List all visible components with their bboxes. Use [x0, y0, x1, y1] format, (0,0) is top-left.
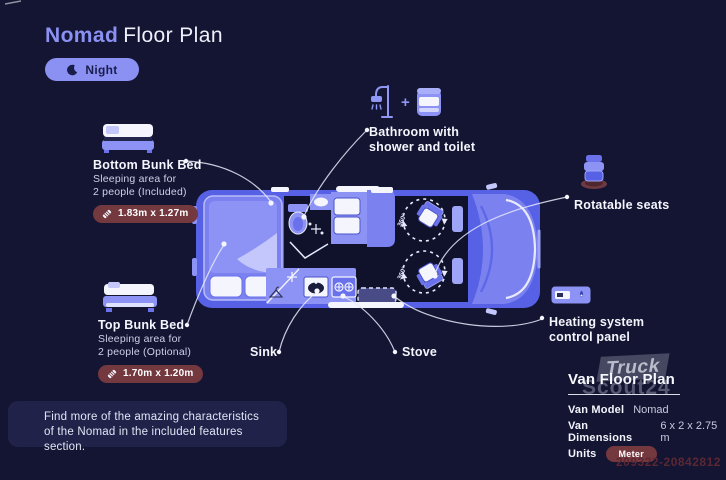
ruler-icon	[106, 368, 118, 380]
heating-panel-icon	[551, 286, 591, 304]
bottom-bunk-dimensions-badge: 1.83m x 1.27m	[93, 205, 198, 223]
kitchen	[266, 268, 356, 304]
sink-unit	[304, 277, 328, 297]
toilet-icon	[416, 86, 442, 118]
bathroom-title: Bathroom with	[369, 125, 475, 140]
bottom-bunk-callout: Bottom Bunk Bed Sleeping area for 2 peop…	[93, 123, 202, 225]
rotatable-seats-callout: Rotatable seats	[574, 153, 669, 213]
seat-icon	[577, 153, 611, 191]
bed-icon	[102, 281, 158, 313]
bed-icon	[99, 123, 157, 153]
van-model-row: Van Model Nomad	[568, 402, 726, 418]
top-bunk-title: Top Bunk Bed	[98, 318, 203, 333]
ruler-icon	[101, 208, 113, 220]
rotatable-seats-title: Rotatable seats	[574, 198, 669, 213]
corner-mark	[5, 1, 21, 4]
stove-label: Stove	[402, 345, 437, 360]
info-panel-heading: Van Floor Plan	[568, 371, 680, 395]
van-dimensions-row: Van Dimensions 6 x 2 x 2.75 m	[568, 424, 726, 440]
bottom-bunk-title: Bottom Bunk Bed	[93, 158, 202, 173]
floor-plan-infographic: 360° 360°	[0, 0, 726, 480]
listing-id: 209322-20842812	[616, 455, 721, 469]
note-callout: Find more of the amazing characteristics…	[8, 401, 287, 447]
top-bunk-callout: Top Bunk Bed Sleeping area for 2 people …	[98, 281, 203, 385]
dinette	[331, 187, 395, 247]
shower-icon	[369, 83, 395, 121]
sink-label: Sink	[250, 345, 277, 360]
heating-callout: Heating system control panel	[549, 286, 644, 344]
bathroom-callout: + Bathroom with shower and toilet	[369, 83, 475, 154]
top-bunk-dimensions-badge: 1.70m x 1.20m	[98, 365, 203, 383]
plus-separator: +	[401, 95, 410, 110]
heating-title: Heating system	[549, 315, 644, 330]
